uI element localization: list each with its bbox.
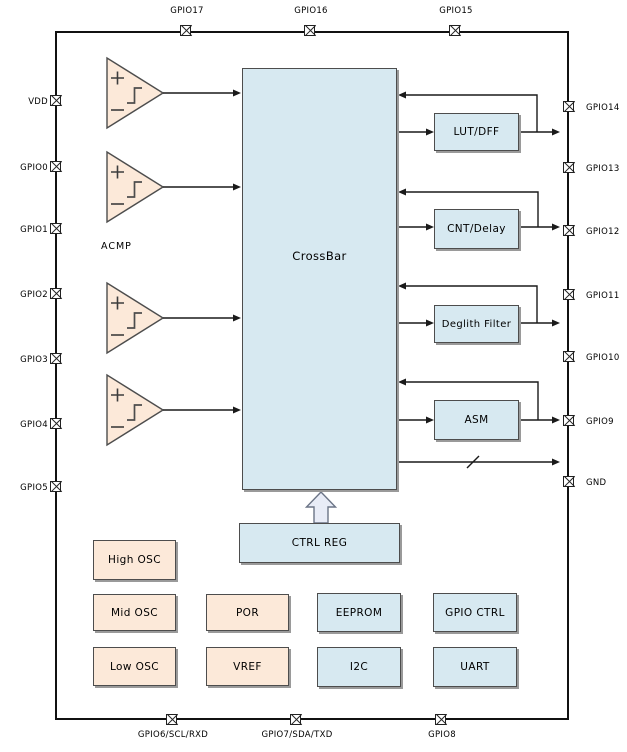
lut-dff-block: LUT/DFF — [434, 113, 519, 151]
pin-vdd-icon — [50, 95, 61, 106]
pin-label-gpio0: GPIO0 — [8, 163, 48, 173]
pin-gpio10-icon — [563, 351, 574, 362]
comparator-icon-3 — [107, 283, 163, 353]
comparator-icon-4 — [107, 375, 163, 445]
gpio-ctrl-block: GPIO CTRL — [433, 593, 517, 632]
pin-gpio16-icon — [304, 25, 315, 36]
ctrl-reg-up-arrow-icon — [307, 492, 336, 523]
pin-label-vdd: VDD — [8, 97, 48, 107]
pin-gpio15-icon — [449, 25, 460, 36]
high-osc-block: High OSC — [93, 540, 176, 580]
acmp-arrowheads — [233, 90, 241, 414]
pin-gpio1-icon — [50, 223, 61, 234]
pin-gpio3-icon — [50, 353, 61, 364]
pin-gpio12-icon — [563, 225, 574, 236]
pin-gpio0-icon — [50, 161, 61, 172]
pin-gpio14-icon — [563, 101, 574, 112]
crossbar-block: CrossBar — [242, 68, 397, 490]
pin-label-gpio8: GPIO8 — [387, 730, 497, 740]
ctrl-reg-block: CTRL REG — [239, 523, 400, 563]
pin-gnd-icon — [563, 476, 574, 487]
mid-osc-block: Mid OSC — [93, 594, 176, 631]
chip-block-diagram: CrossBar ACMP LUT/DFF CNT/Delay Deglith … — [0, 0, 627, 752]
pin-label-gpio5: GPIO5 — [8, 483, 48, 493]
pin-label-gpio7: GPIO7/SDA/TXD — [242, 730, 352, 740]
pin-gpio9-icon — [563, 415, 574, 426]
pin-label-gpio10: GPIO10 — [586, 353, 620, 363]
comparator-icon-2 — [107, 152, 163, 222]
pin-label-gpio15: GPIO15 — [411, 6, 501, 16]
pin-gpio13-icon — [563, 162, 574, 173]
pin-gpio7-icon — [290, 714, 301, 725]
pin-label-gpio9: GPIO9 — [586, 417, 614, 427]
pin-gpio8-icon — [435, 714, 446, 725]
pin-label-gpio1: GPIO1 — [8, 225, 48, 235]
comparator-icon-1 — [107, 58, 163, 128]
pin-gpio5-icon — [50, 481, 61, 492]
pin-label-gpio14: GPIO14 — [586, 103, 620, 113]
cnt-delay-block: CNT/Delay — [434, 209, 519, 249]
pin-gpio17-icon — [180, 25, 191, 36]
pin-gpio11-icon — [563, 289, 574, 300]
bus-arrowhead — [552, 459, 560, 466]
pin-label-gpio2: GPIO2 — [8, 290, 48, 300]
por-block: POR — [206, 594, 289, 631]
pin-gpio2-icon — [50, 288, 61, 299]
pin-label-gpio17: GPIO17 — [142, 6, 232, 16]
low-osc-block: Low OSC — [93, 647, 176, 686]
pin-label-gpio3: GPIO3 — [8, 355, 48, 365]
acmp-label: ACMP — [101, 241, 132, 252]
eeprom-block: EEPROM — [317, 593, 401, 632]
uart-block: UART — [433, 647, 517, 687]
asm-block: ASM — [434, 400, 519, 440]
vref-block: VREF — [206, 647, 289, 686]
pin-label-gpio13: GPIO13 — [586, 164, 620, 174]
pin-label-gpio4: GPIO4 — [8, 420, 48, 430]
bus-wire — [398, 456, 553, 468]
pin-gpio4-icon — [50, 418, 61, 429]
deglitch-filter-block: Deglith Filter — [434, 305, 519, 343]
acmp-output-wires — [163, 93, 234, 410]
pin-label-gpio6: GPIO6/SCL/RXD — [118, 730, 228, 740]
pin-label-gpio11: GPIO11 — [586, 291, 620, 301]
i2c-block: I2C — [317, 647, 401, 687]
pin-label-gpio12: GPIO12 — [586, 227, 620, 237]
pin-label-gpio16: GPIO16 — [266, 6, 356, 16]
pin-label-gnd: GND — [586, 478, 606, 488]
pin-gpio6-icon — [166, 714, 177, 725]
crossbar-label: CrossBar — [243, 249, 396, 263]
